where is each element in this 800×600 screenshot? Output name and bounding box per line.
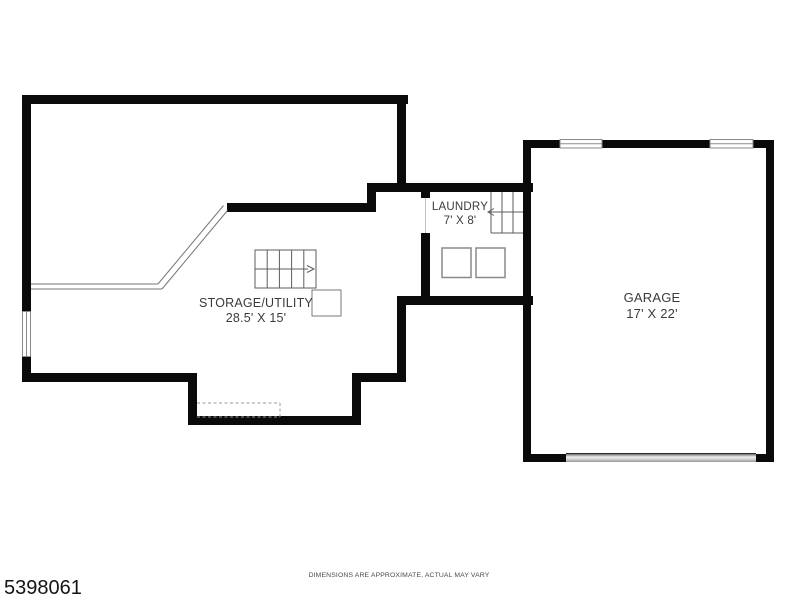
room-dimensions: 28.5' X 15' [166, 311, 346, 326]
room-label-laundry: LAUNDRY 7' X 8' [410, 200, 510, 228]
washer-icon [442, 248, 471, 278]
dryer-icon [476, 248, 505, 278]
garage-window-icon [560, 140, 602, 149]
room-name: STORAGE/UTILITY [166, 296, 346, 311]
room-dimensions: 17' X 22' [562, 306, 742, 322]
dashed-area-icon [197, 403, 280, 417]
room-name: GARAGE [562, 290, 742, 306]
arrow-right-icon [307, 266, 314, 273]
room-name: LAUNDRY [410, 200, 510, 214]
garage-window-icon [710, 140, 753, 149]
floorplan-canvas: STORAGE/UTILITY 28.5' X 15' LAUNDRY 7' X… [0, 0, 800, 600]
disclaimer-text: DIMENSIONS ARE APPROXIMATE, ACTUAL MAY V… [289, 572, 509, 579]
room-label-garage: GARAGE 17' X 22' [562, 290, 742, 322]
window-icon [23, 312, 31, 357]
room-dimensions: 7' X 8' [410, 214, 510, 228]
room-label-storage-utility: STORAGE/UTILITY 28.5' X 15' [166, 296, 346, 326]
railing-icon [31, 206, 228, 290]
listing-id: 5398061 [4, 577, 82, 600]
stairs-icon [255, 250, 316, 288]
